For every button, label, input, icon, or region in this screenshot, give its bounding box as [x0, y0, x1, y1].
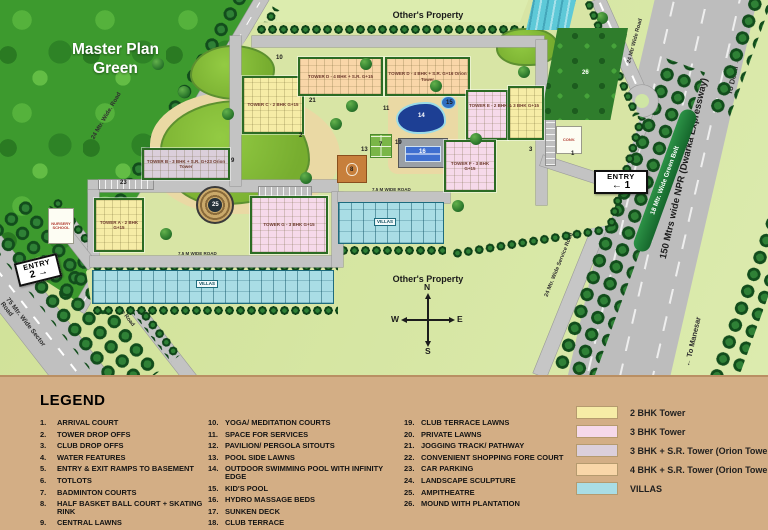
marker-10: 10: [276, 55, 283, 61]
legend-item: 14.OUTDOOR SWIMMING POOL WITH INFINITY E…: [208, 465, 403, 480]
site-plan-map: Master Plan Green 24 Mtr. Wide. Road 150…: [0, 0, 768, 375]
swatch-3bhk-sr-label: 3 BHK + S.R. Tower (Orion Tower): [630, 446, 768, 456]
others-property-top-label: Other's Property: [368, 10, 488, 20]
swatch-3bhk-label: 3 BHK Tower: [630, 427, 685, 437]
tower-d2: TOWER D - 4 BHK + S.R. G+16 Orion Tower: [385, 57, 470, 96]
hedge-villas-right: [338, 245, 446, 255]
tree-icon: [300, 172, 312, 184]
legend-item: 22.CONVENIENT SHOPPING FORE COURT: [404, 454, 579, 462]
tree-icon: [160, 228, 172, 240]
marker-13: 13: [361, 147, 368, 153]
legend-title: LEGEND: [40, 392, 106, 409]
villas-label-south: VILLAS: [196, 280, 218, 288]
legend-item: 1.ARRIVAL COURT: [40, 419, 205, 427]
marker-11: 11: [383, 106, 389, 112]
tower-g-label: TOWER G - 3 BHK G+15: [263, 222, 314, 227]
compass-w: W: [391, 314, 399, 324]
tower-a-label: TOWER A - 2 BHK G+15: [97, 220, 141, 231]
tower-b-label: TOWER B - 3 BHK + S.R. G+23 Orion Tower: [145, 159, 227, 170]
legend-item: 5.ENTRY & EXIT RAMPS TO BASEMENT: [40, 465, 205, 473]
legend-item: 2.TOWER DROP OFFS: [40, 431, 205, 439]
compass-e: E: [457, 314, 463, 324]
car-parking-strip: [545, 118, 556, 166]
legend-panel: LEGEND 1.ARRIVAL COURT 2.TOWER DROP OFFS…: [0, 375, 768, 530]
entry-1-sign: ENTRY ← 1: [594, 170, 648, 194]
legend-item: 12.PAVILION/ PERGOLA SITOUTS: [208, 442, 403, 450]
hedge-top: [256, 24, 524, 35]
internal-road-north: [252, 36, 544, 47]
marker-3: 3: [529, 147, 532, 153]
tower-e-wing-3bhk: [466, 90, 508, 140]
tower-g: TOWER G - 3 BHK G+15: [250, 196, 328, 254]
villas-road: [90, 256, 338, 267]
key-row-2bhk: 2 BHK Tower: [576, 406, 768, 419]
tower-f-label: TOWER F - 3 BHK G+15: [447, 161, 493, 172]
legend-item: 6.TOTLOTS: [40, 477, 205, 485]
legend-item: 16.HYDRO MASSAGE BEDS: [208, 496, 403, 504]
key-row-3bhk: 3 BHK Tower: [576, 425, 768, 438]
legend-item: 21.JOGGING TRACK/ PATHWAY: [404, 442, 579, 450]
tower-f: TOWER F - 3 BHK G+15: [444, 140, 496, 192]
tower-d1-label: TOWER D - 4 BHK + S.R. G+15: [308, 74, 373, 79]
legend-item: 24.LANDSCAPE SCULPTURE: [404, 477, 579, 485]
marker-9: 9: [231, 158, 234, 164]
swatch-4bhk-sr-label: 4 BHK + S.R. Tower (Orion Tower): [630, 465, 768, 475]
marker-8: 8: [350, 167, 353, 173]
legend-column-2: 10.YOGA/ MEDITATION COURTS 11.SPACE FOR …: [208, 419, 403, 530]
swatch-4bhk-sr: [576, 463, 618, 476]
legend-item: 11.SPACE FOR SERVICES: [208, 431, 403, 439]
internal-road-label-2: 7.5 M WIDE ROAD: [372, 187, 411, 192]
legend-item: 18.CLUB TERRACE: [208, 519, 403, 527]
legend-item: 10.YOGA/ MEDITATION COURTS: [208, 419, 403, 427]
lawn-northeast: [496, 28, 558, 66]
marker-7: 7: [379, 142, 382, 148]
key-row-4bhk-sr: 4 BHK + S.R. Tower (Orion Tower): [576, 463, 768, 476]
compass-s: S: [425, 346, 431, 356]
legend-item: 15.KID'S POOL: [208, 485, 403, 493]
legend-column-1: 1.ARRIVAL COURT 2.TOWER DROP OFFS 3.CLUB…: [40, 419, 205, 530]
marker-1: 1: [571, 151, 574, 157]
hedge-bottom: [92, 305, 338, 316]
tower-e-wing-2bhk: [508, 86, 544, 140]
marker-23: 23: [120, 180, 127, 186]
swatch-2bhk: [576, 406, 618, 419]
swatch-2bhk-label: 2 BHK Tower: [630, 408, 685, 418]
legend-item: 4.WATER FEATURES: [40, 454, 205, 462]
tree-icon: [430, 80, 442, 92]
legend-item: 19.CLUB TERRACE LAWNS: [404, 419, 579, 427]
tree-icon: [346, 100, 358, 112]
key-row-villas: VILLAS: [576, 482, 768, 495]
tower-c-label: TOWER C - 2 BHK G+15: [247, 102, 298, 107]
legend-item: 23.CAR PARKING: [404, 465, 579, 473]
tree-icon: [518, 66, 530, 78]
tower-b: TOWER B - 3 BHK + S.R. G+23 Orion Tower: [142, 148, 230, 180]
tree-icon: [152, 58, 164, 70]
tower-d2-label: TOWER D - 4 BHK + S.R. G+16 Orion Tower: [388, 71, 467, 82]
convenient-shopping: CONV.: [556, 126, 582, 154]
legend-color-key: 2 BHK Tower 3 BHK Tower 3 BHK + S.R. Tow…: [576, 406, 768, 501]
marker-19: 19: [395, 140, 402, 146]
legend-item: 3.CLUB DROP OFFS: [40, 442, 205, 450]
swatch-3bhk-sr: [576, 444, 618, 457]
tree-icon: [470, 133, 482, 145]
swatch-3bhk: [576, 425, 618, 438]
marker-16: 16: [419, 149, 426, 155]
tree-icon: [330, 118, 342, 130]
tree-icon: [360, 58, 372, 70]
swatch-villas: [576, 482, 618, 495]
tower-a: TOWER A - 2 BHK G+15: [94, 198, 144, 252]
marker-2: 2: [299, 133, 302, 139]
compass-n: N: [424, 282, 430, 292]
marker-14: 14: [418, 113, 425, 119]
legend-item: 26.MOUND WITH PLANTATION: [404, 500, 579, 508]
marker-21: 21: [309, 98, 316, 104]
key-row-3bhk-sr: 3 BHK + S.R. Tower (Orion Tower): [576, 444, 768, 457]
swatch-villas-label: VILLAS: [630, 484, 662, 494]
tree-icon: [178, 86, 190, 98]
water-feature-corner: [526, 0, 576, 30]
marker-15: 15: [446, 100, 453, 106]
nursery-school-label: NURSERY SCHOOL: [50, 222, 72, 231]
entry-1-number: ← 1: [598, 181, 644, 191]
convenient-shopping-label: CONV.: [563, 138, 575, 142]
legend-item: 8.HALF BASKET BALL COURT + SKATING RINK: [40, 500, 205, 515]
marker-26: 26: [582, 70, 589, 76]
tree-icon: [452, 200, 464, 212]
legend-item: 20.PRIVATE LAWNS: [404, 431, 579, 439]
legend-column-3: 19.CLUB TERRACE LAWNS 20.PRIVATE LAWNS 2…: [404, 419, 579, 512]
master-plan-page: Master Plan Green 24 Mtr. Wide. Road 150…: [0, 0, 768, 530]
tower-e-label: TOWER E - 2 BHK & 3 BHK G+15: [462, 103, 546, 108]
internal-road-label-1: 7.5 M WIDE ROAD: [178, 251, 217, 256]
legend-item: 25.AMPITHEATRE: [404, 489, 579, 497]
tower-c: TOWER C - 2 BHK G+15: [242, 76, 304, 134]
legend-item: 9.CENTRAL LAWNS: [40, 519, 205, 527]
nursery-school: NURSERY SCHOOL: [48, 208, 74, 244]
compass-rose: N S W E: [398, 288, 458, 352]
tree-icon: [222, 108, 234, 120]
legend-item: 13.POOL SIDE LAWNS: [208, 454, 403, 462]
legend-item: 17.SUNKEN DECK: [208, 508, 403, 516]
marker-25: 25: [212, 202, 219, 208]
legend-item: 7.BADMINTON COURTS: [40, 489, 205, 497]
villas-label-east: VILLAS: [374, 218, 396, 226]
